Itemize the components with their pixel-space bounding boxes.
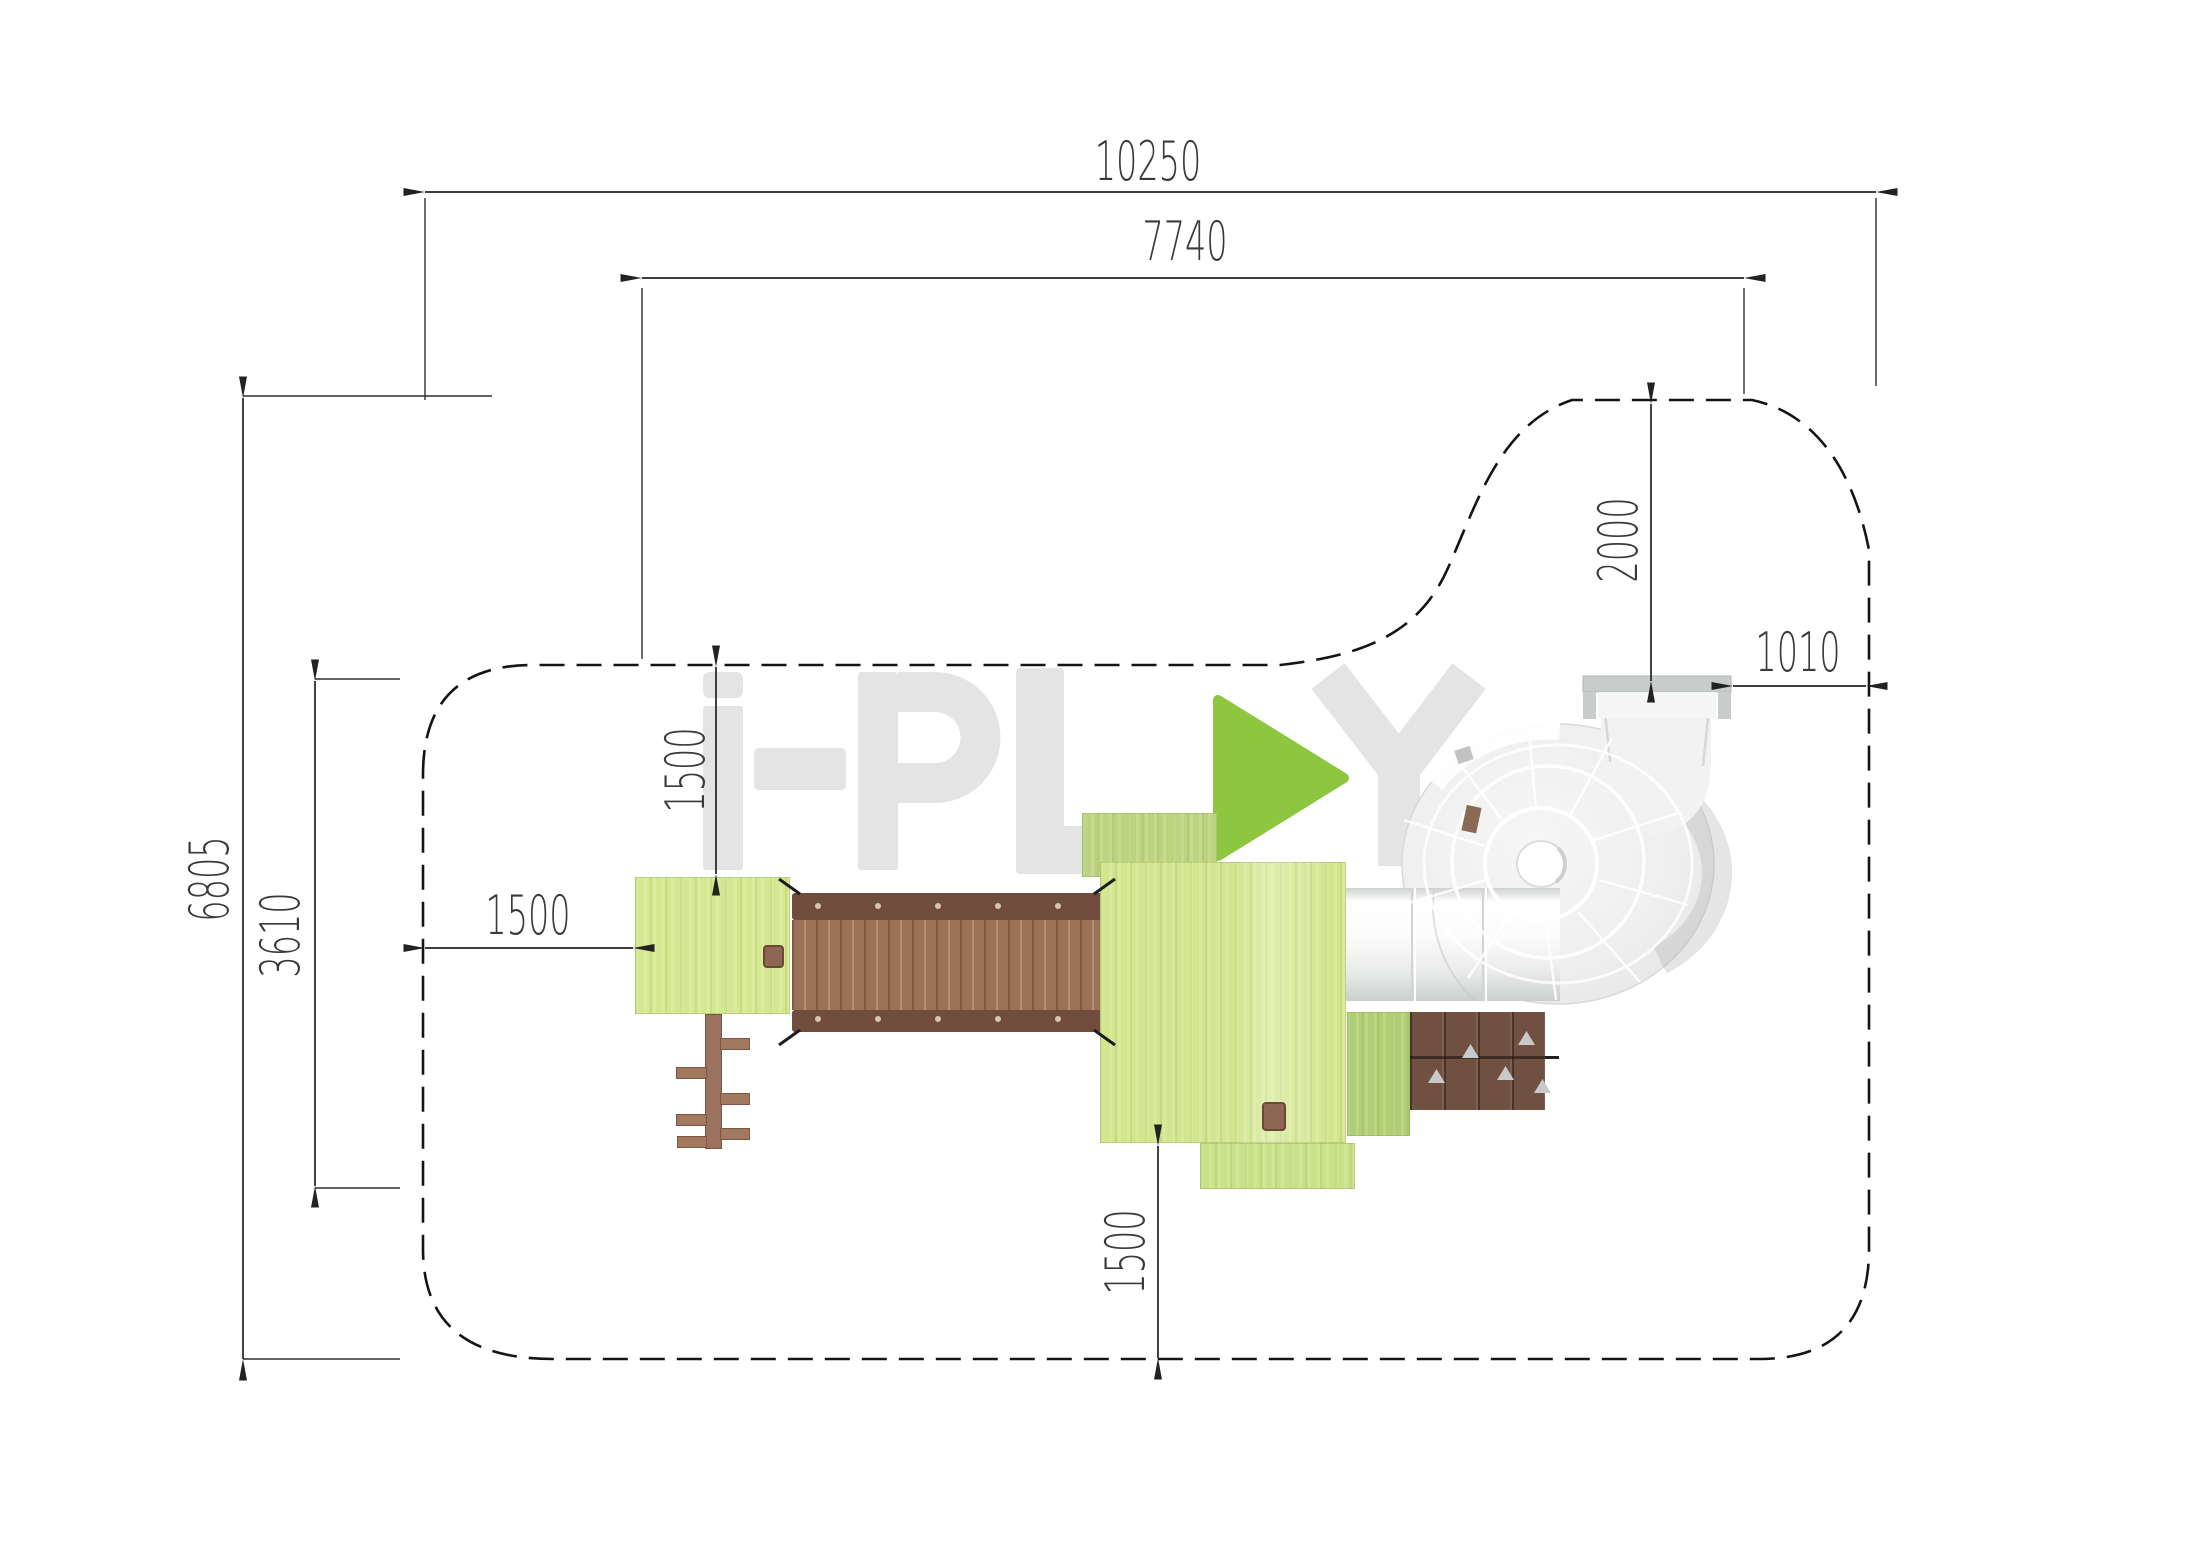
dim-label-platform-top-clearance: 1500 — [659, 727, 713, 812]
bridge-braces — [779, 879, 1115, 1045]
drawing-linework — [0, 0, 2188, 1546]
dim-label-equipment-width: 7740 — [1142, 215, 1227, 269]
dim-label-left-clearance: 1500 — [485, 889, 570, 943]
dim-label-overall-width: 10250 — [1095, 135, 1202, 189]
plan-drawing: 10250 7740 6805 3610 1500 1500 1500 2000… — [0, 0, 2188, 1546]
dim-label-right-clearance: 1010 — [1755, 626, 1840, 680]
slide-straight-tube — [1346, 888, 1560, 1001]
dim-label-overall-depth: 6805 — [183, 836, 237, 921]
slide-exit-flange — [1583, 676, 1731, 692]
dim-label-bottom-clearance: 1500 — [1099, 1209, 1153, 1294]
dim-label-structure-depth: 3610 — [254, 892, 308, 977]
spiral-tube-slide — [1346, 676, 1731, 1004]
dim-label-top-clearance: 2000 — [1592, 497, 1646, 582]
